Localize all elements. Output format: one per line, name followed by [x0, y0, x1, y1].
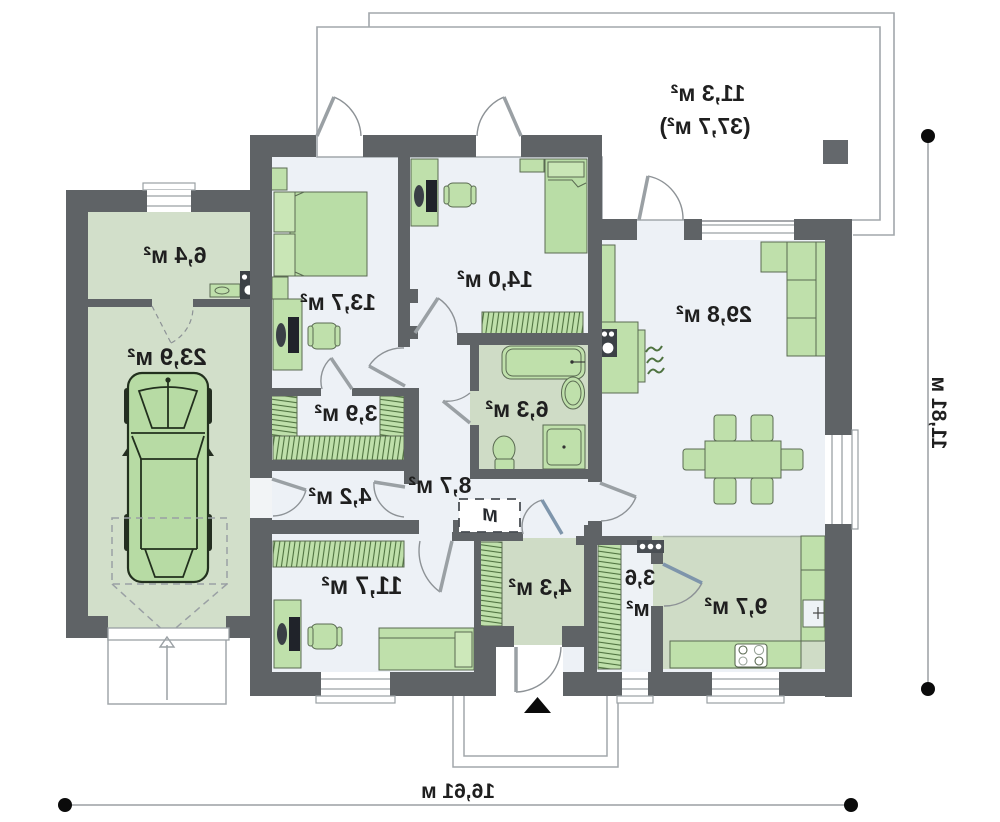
svg-text:11,3 м²: 11,3 м²	[670, 80, 745, 106]
svg-text:14,0 м²: 14,0 м²	[457, 266, 533, 292]
svg-text:13,7 м²: 13,7 м²	[300, 289, 376, 315]
svg-text:6,4 м²: 6,4 м²	[143, 242, 206, 268]
svg-text:23,9 м²: 23,9 м²	[127, 344, 206, 371]
svg-text:4,3 м²: 4,3 м²	[508, 574, 571, 600]
svg-text:8,7 м²: 8,7 м²	[408, 472, 471, 498]
svg-text:11,7 м²: 11,7 м²	[321, 572, 402, 600]
svg-text:9,7 м²: 9,7 м²	[704, 593, 767, 619]
svg-text:11,81 м: 11,81 м	[927, 377, 950, 450]
svg-text:4,2 м²: 4,2 м²	[308, 483, 371, 509]
svg-text:3,6: 3,6	[625, 565, 656, 590]
svg-text:6,3 м²: 6,3 м²	[485, 396, 548, 422]
svg-text:м²: м²	[626, 596, 650, 621]
svg-text:29,8 м²: 29,8 м²	[676, 301, 752, 327]
svg-text:16,61 м: 16,61 м	[421, 780, 495, 803]
svg-text:3,9 м²: 3,9 м²	[314, 400, 377, 426]
svg-text:(37,7 м²): (37,7 м²)	[659, 113, 750, 139]
